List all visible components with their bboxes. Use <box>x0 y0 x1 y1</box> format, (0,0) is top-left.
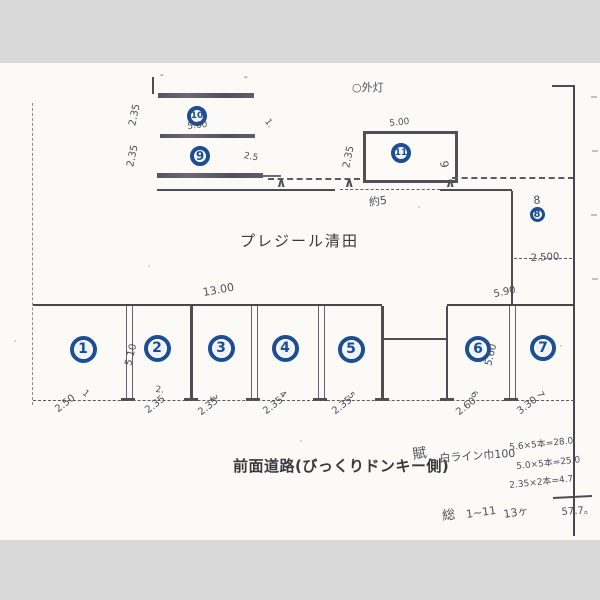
parking-spot-marker-1: 1 <box>70 336 97 363</box>
right-border-top-tick <box>552 85 573 87</box>
row-top-line-left <box>33 304 382 306</box>
parking-spot-marker-3: 3 <box>208 335 235 362</box>
parking-spot-marker-7: 7 <box>530 335 556 361</box>
carport-bar-middle <box>160 134 255 138</box>
right-border-line <box>573 85 575 536</box>
scan-speckle <box>418 206 420 208</box>
ground-line-mid <box>340 189 440 190</box>
scan-speckle <box>300 440 302 442</box>
stall-divider-4-5 <box>318 306 325 399</box>
handwritten-annotation: 賦 <box>411 442 428 464</box>
scanned-parking-layout: ∧ ∧ ∧ プレジール清田 前面道路(びっくりドンキー側) 1234567891… <box>0 0 600 600</box>
carport-bar-top <box>158 93 254 98</box>
carport-bar-bottom <box>157 173 263 178</box>
scan-speckle <box>14 340 16 342</box>
scan-speckle <box>560 345 562 347</box>
stall-divider-3-4 <box>251 306 258 399</box>
handwritten-annotation: 5.00 <box>187 120 208 132</box>
building-name-label: プレジール清田 <box>240 230 359 251</box>
row-baseline-dashed <box>33 400 574 401</box>
handwritten-annotation: 57.7。 <box>561 501 594 518</box>
parking-spot-marker-8: 8 <box>530 207 545 222</box>
parking-spot-marker-9: 9 <box>190 146 210 166</box>
carport-left-tick <box>152 77 154 94</box>
ground-hatch-mark: ∧ <box>344 177 355 190</box>
ground-line-left <box>157 189 335 191</box>
stall-wall-5-right <box>381 306 384 399</box>
scan-speckle <box>148 265 150 267</box>
handwritten-annotation: - <box>244 72 248 83</box>
parking-spot-marker-5: 5 <box>338 336 365 363</box>
parking-spot-marker-4: 4 <box>272 335 299 362</box>
parking-spot-marker-2: 2 <box>144 335 171 362</box>
handwritten-annotation: 総 <box>441 504 456 524</box>
handwritten-annotation: 2.500 <box>530 252 559 264</box>
parking-spot-marker-11: 11 <box>391 143 411 163</box>
ground-hatch-mark: ∧ <box>276 177 287 190</box>
left-dotted-border <box>32 103 33 405</box>
stall-divider-6-7 <box>509 306 516 399</box>
ground-hatch-mark: ∧ <box>445 177 456 190</box>
handwritten-annotation: 約5 <box>368 192 388 210</box>
scan-noise-dash <box>592 150 598 152</box>
scan-noise-dash <box>591 214 597 216</box>
stall-divider-2-3 <box>190 306 193 399</box>
handwritten-annotation: - <box>160 70 164 81</box>
stall-wall-6-left <box>446 306 448 399</box>
handwritten-annotation: ○外灯 <box>352 79 384 95</box>
handwritten-annotation: 5.00 <box>389 117 410 129</box>
scan-noise-dash <box>591 96 597 98</box>
ground-dash-right <box>452 177 574 179</box>
handwritten-annotation: 8 <box>533 193 541 207</box>
scan-noise-dash <box>592 278 598 280</box>
gap-connector-line <box>382 338 447 340</box>
spot11-box <box>363 131 458 183</box>
